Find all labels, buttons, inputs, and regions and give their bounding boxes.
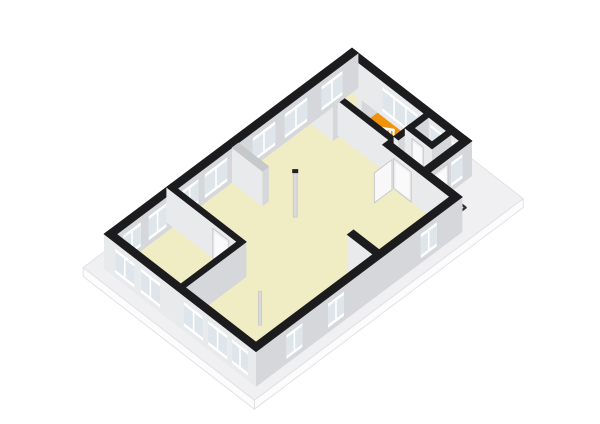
wall-exterior-sw-face: [256, 347, 262, 387]
wall-exterior-step-face: [456, 197, 462, 237]
floor-plan-3d-view: [0, 0, 600, 424]
column-1: [293, 173, 297, 217]
wall-stub-middle-face: [262, 167, 268, 207]
column-2: [259, 291, 262, 325]
wall-left-room-ne-face: [242, 242, 247, 281]
column-1-cap: [292, 169, 298, 173]
floor-plan-canvas: [0, 0, 600, 424]
